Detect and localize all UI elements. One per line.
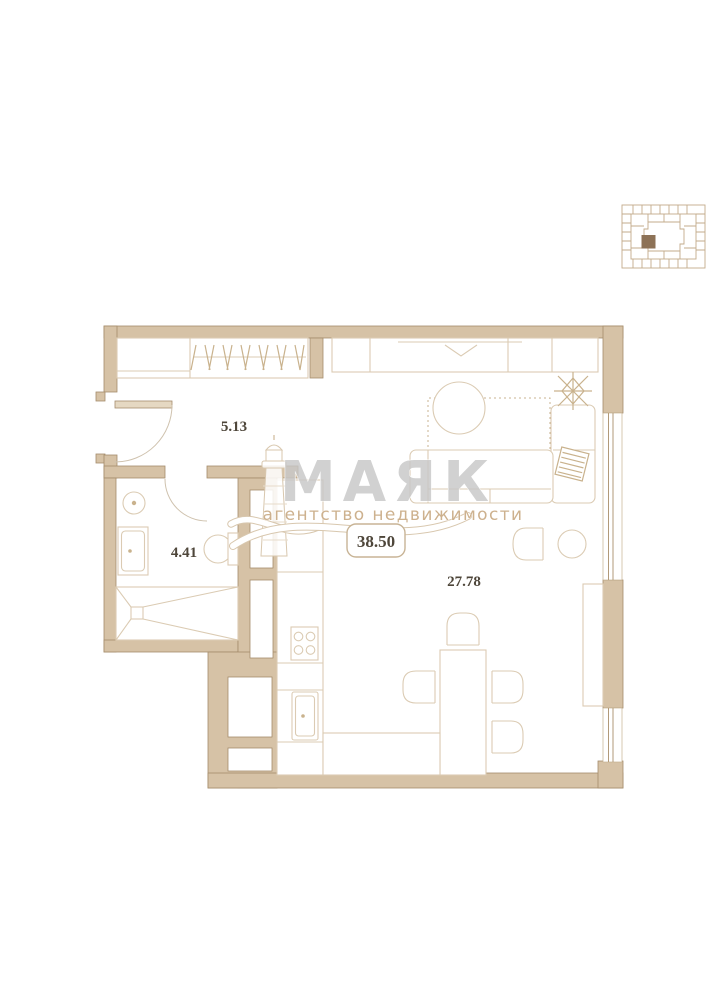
stove xyxy=(291,627,318,660)
dining-table xyxy=(440,650,486,775)
dining-chair xyxy=(447,613,479,645)
window-lower xyxy=(603,708,622,762)
plant-icon xyxy=(554,372,592,410)
dining-chair xyxy=(403,671,435,703)
dining-chair xyxy=(492,721,523,753)
armchair xyxy=(513,528,543,560)
floorplan-page: МАЯК агентство недвижимости 5.13 4.41 27… xyxy=(0,0,728,1000)
round-pouf xyxy=(433,382,485,434)
door-swing-arc xyxy=(165,479,207,521)
shaft-opening xyxy=(250,580,273,658)
bathroom-sink xyxy=(118,527,148,575)
area-label-living-kitchen: 27.78 xyxy=(447,574,481,590)
side-table xyxy=(558,530,586,558)
unit-location-highlight xyxy=(642,235,656,249)
entrance-door xyxy=(115,401,172,462)
dining-chair xyxy=(492,671,523,703)
total-area-badge: 38.50 xyxy=(347,524,405,557)
total-area-value: 38.50 xyxy=(357,532,395,551)
radiator xyxy=(583,584,603,706)
shaft-opening xyxy=(228,677,272,737)
building-footprint-icon xyxy=(622,205,705,268)
tv-unit xyxy=(332,338,598,372)
watermark-subtitle-text: агентство недвижимости xyxy=(263,505,524,525)
hallway-wardrobe xyxy=(117,338,308,378)
shaft-opening xyxy=(228,748,272,771)
area-label-bathroom: 4.41 xyxy=(171,545,197,561)
door-swing-arc xyxy=(115,405,172,462)
area-label-hallway: 5.13 xyxy=(221,419,247,435)
washing-machine xyxy=(123,492,145,514)
floor-plan: МАЯК агентство недвижимости 5.13 4.41 27… xyxy=(0,0,728,1000)
bathroom-door xyxy=(165,479,207,521)
entrance-door-leaf xyxy=(115,401,172,408)
window-upper xyxy=(603,413,622,580)
shower xyxy=(116,587,238,640)
pillow-icon xyxy=(555,447,589,481)
kitchen-sink xyxy=(292,692,318,740)
